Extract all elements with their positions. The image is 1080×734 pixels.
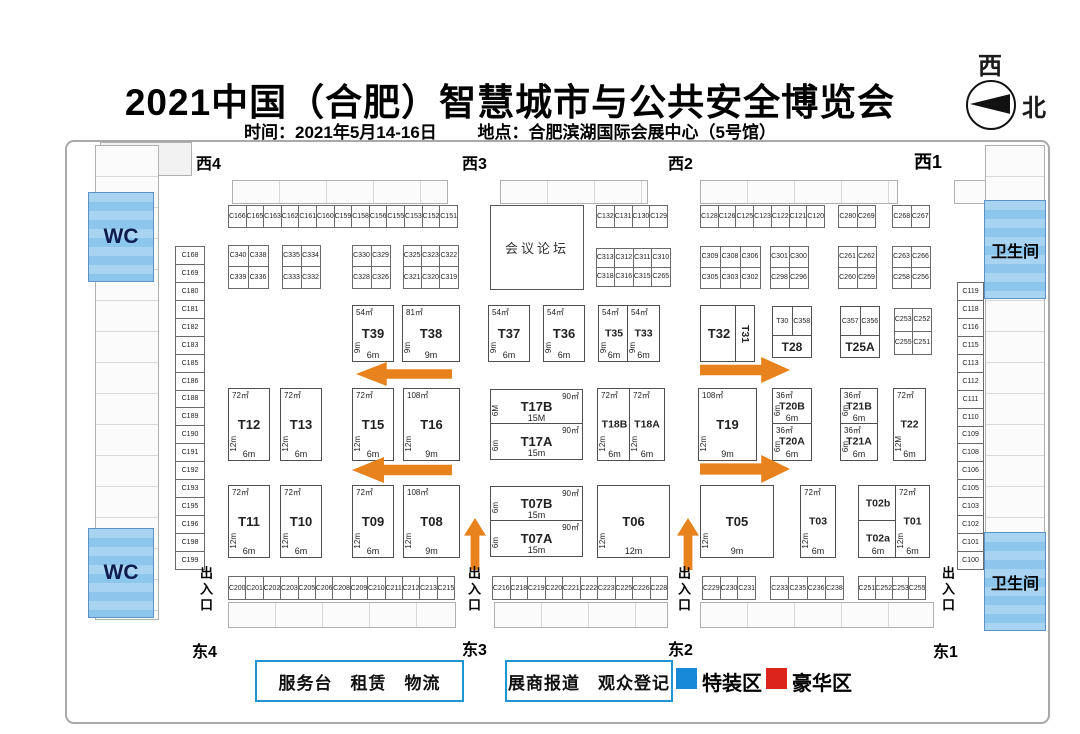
booth-area: 108㎡ bbox=[407, 390, 428, 401]
booth-T17A: 90㎡T17A6m15m bbox=[490, 423, 583, 460]
booth-cell: C260 bbox=[838, 267, 858, 289]
booth-cell: C165 bbox=[246, 205, 265, 228]
booth-T17B: 90㎡T17B6M15M bbox=[490, 389, 583, 425]
booth-cell: C156 bbox=[369, 205, 388, 228]
booth-cell: C339 bbox=[228, 266, 249, 289]
booth-area: 72㎡ bbox=[356, 487, 373, 498]
booth-side: 12m bbox=[598, 436, 607, 452]
booth-cell: C192 bbox=[175, 461, 205, 480]
booth-side: 12m bbox=[630, 436, 639, 452]
booth-T33: 54㎡T339m6m bbox=[627, 305, 660, 362]
booth-area: 36㎡ bbox=[844, 425, 861, 436]
restroom-wc-bottom-left: WC bbox=[88, 528, 154, 618]
booth-cell: C159 bbox=[334, 205, 353, 228]
booth-cell: C160 bbox=[316, 205, 335, 228]
booth-id: T17A bbox=[521, 433, 553, 448]
booth-side: 12m bbox=[281, 533, 290, 549]
gate-west-4: 西4 bbox=[196, 150, 221, 174]
booth-strip-bottom-2: C216C218C219C220C221C222C223C225C226C228 bbox=[492, 576, 668, 600]
wall-top-2 bbox=[500, 180, 648, 204]
booth-cell: C255 bbox=[894, 331, 914, 355]
booth-side: 9m bbox=[599, 342, 608, 353]
booth-T31: T31 bbox=[735, 305, 755, 362]
booth-cell: C206 bbox=[315, 576, 333, 600]
booth-id: T18A bbox=[634, 418, 660, 430]
booth-cell: C200 bbox=[228, 576, 246, 600]
booth-cell: C223 bbox=[597, 576, 616, 600]
booth-area: 54㎡ bbox=[631, 307, 648, 318]
booth-cell: C300 bbox=[789, 246, 809, 268]
booth-bottom: 6m bbox=[641, 449, 654, 459]
booth-cell: C115 bbox=[957, 336, 984, 355]
gate-west-1: 西1 bbox=[914, 148, 942, 174]
booth-cell: C332 bbox=[301, 266, 321, 289]
booth-id: T31 bbox=[739, 324, 751, 342]
booth-id: T18B bbox=[602, 418, 628, 430]
booth-cell: C129 bbox=[649, 205, 668, 228]
booth-side: 6m bbox=[491, 502, 500, 513]
booth-bottom: 6m bbox=[872, 546, 885, 556]
booth-cell: C191 bbox=[175, 443, 205, 462]
booth-cell: C296 bbox=[789, 267, 809, 289]
booth-bottom: 9m bbox=[721, 449, 734, 459]
booth-cell: C329 bbox=[371, 245, 391, 268]
booth-id: T32 bbox=[708, 325, 730, 340]
booth-cell: C235 bbox=[788, 576, 807, 600]
booth-block-3: C330C329C328C326 bbox=[352, 245, 390, 288]
booth-cell: C311 bbox=[633, 248, 653, 268]
booth-cell: C318 bbox=[596, 267, 616, 287]
booth-cell: C112 bbox=[957, 372, 984, 391]
booth-cell: C333 bbox=[282, 266, 302, 289]
booth-side: 6m bbox=[491, 537, 500, 548]
booth-cell: C251 bbox=[912, 331, 932, 355]
booth-cell: C308 bbox=[720, 246, 741, 268]
booth-strip-bottom-1: C200C201C202C203C205C206C208C209C210C211… bbox=[228, 576, 455, 600]
booth-strip-top-5: C268C267 bbox=[892, 205, 930, 228]
entrance-label: 出入口 bbox=[938, 566, 957, 614]
booth-cell: C198 bbox=[175, 533, 205, 552]
booth-bottom: 6m bbox=[608, 449, 621, 459]
booth-id: T21A bbox=[846, 435, 872, 447]
booth-T18A: 72㎡T18A12m6m bbox=[629, 388, 665, 461]
booth-id: T20A bbox=[779, 435, 805, 447]
booth-side: 12m bbox=[404, 533, 413, 549]
entrance-label: 出入口 bbox=[196, 566, 215, 614]
booth-cell: C102 bbox=[957, 515, 984, 534]
booth-block-1: C340C338C339C336 bbox=[228, 245, 268, 288]
booth-block-4: C325C323C322C321C320C319 bbox=[403, 245, 458, 288]
booth-id: T33 bbox=[634, 327, 652, 339]
booth-cell: C334 bbox=[301, 245, 321, 268]
booth-T20A: 36㎡T20A6m6m bbox=[772, 423, 812, 461]
wall-top-4 bbox=[954, 180, 986, 204]
booth-column-right: C119C118C116C115C113C112C111C110C109C108… bbox=[957, 282, 984, 570]
booth-area: 72㎡ bbox=[633, 390, 650, 401]
booth-cell: C130 bbox=[632, 205, 651, 228]
compass-needle-icon bbox=[970, 91, 1010, 117]
booth-cell: C211 bbox=[385, 576, 403, 600]
booth-cell: C216 bbox=[492, 576, 511, 600]
booth-area: 72㎡ bbox=[232, 390, 249, 401]
booth-id: T08 bbox=[420, 513, 442, 528]
booth-cell: C263 bbox=[892, 246, 912, 268]
booth-bottom: 6m bbox=[243, 546, 256, 556]
booth-cell: C128 bbox=[700, 205, 719, 228]
booth-area: 72㎡ bbox=[899, 487, 916, 498]
booth-block-6: C309C308C306C305C303C302 bbox=[700, 246, 760, 288]
booth-cell: C155 bbox=[386, 205, 405, 228]
entrance-label: 出入口 bbox=[464, 566, 483, 614]
booth-bottom: 6m bbox=[637, 350, 650, 360]
booth-T32: T32 bbox=[700, 305, 738, 362]
booth-id: T39 bbox=[362, 325, 384, 340]
booth-cell: C255 bbox=[908, 576, 926, 600]
legend-registration-box: 展商报道 观众登记 bbox=[505, 660, 673, 702]
booth-cell: C316 bbox=[614, 267, 634, 287]
booth-cell: C253 bbox=[892, 576, 910, 600]
booth-cell: C321 bbox=[403, 266, 422, 289]
booth-id: T13 bbox=[290, 416, 312, 431]
booth-T05: T0512m9m bbox=[700, 485, 774, 558]
booth-cell: C168 bbox=[175, 246, 205, 265]
booth-id: T05 bbox=[726, 513, 748, 528]
booth-strip-top-1: C166C165C163C162C161C160C159C158C156C155… bbox=[228, 205, 458, 228]
booth-side: 12m bbox=[598, 533, 607, 549]
compass-icon bbox=[966, 80, 1016, 130]
booth-cell: C153 bbox=[404, 205, 423, 228]
booth-T35: 54㎡T359m6m bbox=[598, 305, 630, 362]
booth-cell: C120 bbox=[806, 205, 825, 228]
booth-cell: C226 bbox=[632, 576, 651, 600]
booth-id: T36 bbox=[553, 325, 575, 340]
booth-cell: C131 bbox=[614, 205, 633, 228]
booth-cell: C302 bbox=[740, 267, 761, 289]
booth-cell: C103 bbox=[957, 497, 984, 516]
booth-cell: C213 bbox=[419, 576, 437, 600]
booth-cell: C326 bbox=[371, 266, 391, 289]
wall-top-3 bbox=[700, 180, 898, 204]
booth-id: T35 bbox=[605, 327, 623, 339]
booth-cell: C340 bbox=[228, 245, 249, 268]
booth-id: T01 bbox=[903, 515, 921, 527]
booth-area: 54㎡ bbox=[356, 307, 373, 318]
booth-block-T25A: C357C356 T25A bbox=[840, 306, 880, 358]
booth-id: T38 bbox=[420, 325, 442, 340]
booth-cell: C166 bbox=[228, 205, 247, 228]
booth-cell: C113 bbox=[957, 354, 984, 373]
booth-bottom: 6m bbox=[853, 413, 866, 423]
booth-T22: 72㎡T2212M6m bbox=[893, 388, 926, 461]
booth-cell: C110 bbox=[957, 408, 984, 427]
booth-T02a: T02a6m bbox=[858, 520, 898, 558]
booth-side: 12m bbox=[229, 533, 238, 549]
wall-bottom-3 bbox=[700, 602, 934, 628]
booth-T02b: T02b bbox=[858, 485, 898, 523]
booth-T37: 54㎡T379m6m bbox=[488, 305, 530, 362]
booth-bottom: 6m bbox=[812, 546, 825, 556]
booth-cell: C105 bbox=[957, 479, 984, 498]
booth-cell: C230 bbox=[720, 576, 739, 600]
booth-cell: C201 bbox=[245, 576, 263, 600]
booth-block-9: C263C266C258C256 bbox=[892, 246, 930, 288]
booth-side: 12m bbox=[701, 533, 710, 549]
booth-id: T17B bbox=[521, 399, 553, 414]
booth-T16: 108㎡T1612m9m bbox=[403, 388, 460, 461]
booth-block-8: C261C262C260C259 bbox=[838, 246, 876, 288]
booth-id: T09 bbox=[362, 513, 384, 528]
booth-cell: C323 bbox=[421, 245, 440, 268]
booth-cell: C220 bbox=[545, 576, 564, 600]
booth-area: 72㎡ bbox=[232, 487, 249, 498]
booth-cell: C126 bbox=[718, 205, 737, 228]
booth-column-left: C168C169C180C181C182C183C185C186C188C189… bbox=[175, 246, 205, 570]
wall-bottom-2 bbox=[494, 602, 668, 628]
booth-T07A: 90㎡T07A6m15m bbox=[490, 520, 583, 557]
booth-cell: C219 bbox=[527, 576, 546, 600]
floor-plan-canvas: 2021中国（合肥）智慧城市与公共安全博览会 时间：2021年5月14-16日 … bbox=[0, 0, 1080, 734]
booth-cell: C183 bbox=[175, 336, 205, 355]
booth-bottom: 15m bbox=[528, 510, 546, 520]
booth-area: 54㎡ bbox=[547, 307, 564, 318]
legend-services-box: 服务台 租赁 物流 bbox=[255, 660, 464, 702]
booth-cell: C122 bbox=[771, 205, 790, 228]
booth-side: 12m bbox=[801, 533, 810, 549]
gate-west-2: 西2 bbox=[668, 150, 693, 174]
booth-T19: 108㎡T1912m9m bbox=[698, 388, 757, 461]
booth-block-7: C301C300C298C296 bbox=[770, 246, 808, 288]
booth-area: 72㎡ bbox=[356, 390, 373, 401]
booth-bottom: 6m bbox=[503, 350, 516, 360]
booth-T10: 72㎡T1012m6m bbox=[280, 485, 322, 558]
booth-cell: C119 bbox=[957, 282, 984, 301]
restroom-top-right: 卫生间 bbox=[984, 200, 1046, 299]
restroom-label: 卫生间 bbox=[991, 238, 1039, 262]
booth-cell: C238 bbox=[825, 576, 844, 600]
booth-cell: C233 bbox=[770, 576, 789, 600]
booth-cell: C262 bbox=[857, 246, 877, 268]
booth-cell: C202 bbox=[263, 576, 281, 600]
booth-side: 12M bbox=[894, 436, 903, 452]
booth-T18B: 72㎡T18B12m6m bbox=[597, 388, 632, 461]
booth-T25A: T25A bbox=[841, 335, 879, 357]
booth-area: 72㎡ bbox=[601, 390, 618, 401]
booth-side: 6m bbox=[773, 405, 782, 416]
booth-T38: 81㎡T389m9m bbox=[402, 305, 460, 362]
booth-side: 6m bbox=[773, 441, 782, 452]
booth-T11: 72㎡T1112m6m bbox=[228, 485, 270, 558]
booth-cell: C312 bbox=[614, 248, 634, 268]
booth-cell: C280 bbox=[838, 205, 858, 228]
booth-bottom: 12m bbox=[625, 546, 643, 556]
booth-cell: C158 bbox=[351, 205, 370, 228]
booth-cell: C328 bbox=[352, 266, 372, 289]
booth-cell: C101 bbox=[957, 533, 984, 552]
booth-bottom: 9m bbox=[425, 449, 438, 459]
booth-cell: C215 bbox=[437, 576, 455, 600]
booth-cell: C125 bbox=[735, 205, 754, 228]
booth-area: 72㎡ bbox=[804, 487, 821, 498]
booth-area: 72㎡ bbox=[284, 487, 301, 498]
booth-cell: C231 bbox=[737, 576, 756, 600]
booth-bottom: 6m bbox=[558, 350, 571, 360]
booth-cell: C315 bbox=[633, 267, 653, 287]
booth-cell: C251 bbox=[858, 576, 876, 600]
booth-cell: C218 bbox=[510, 576, 529, 600]
booth-cell: C189 bbox=[175, 407, 205, 426]
booth-T15: 72㎡T1512m6m bbox=[352, 388, 394, 461]
booth-side: 6m bbox=[491, 440, 500, 451]
booth-cell: C123 bbox=[753, 205, 772, 228]
booth-cell: C267 bbox=[911, 205, 931, 228]
booth-cell: C268 bbox=[892, 205, 912, 228]
wc-label: WC bbox=[104, 225, 139, 249]
booth-id: T07A bbox=[521, 530, 553, 545]
booth-bottom: 6m bbox=[243, 449, 256, 459]
booth-cell: C195 bbox=[175, 497, 205, 516]
booth-cell: C258 bbox=[892, 267, 912, 289]
booth-side: 9m bbox=[403, 342, 412, 353]
booth-T03: 72㎡T0312m6m bbox=[800, 485, 836, 558]
wc-label: WC bbox=[104, 561, 139, 585]
booth-side: 12m bbox=[353, 436, 362, 452]
booth-area: 90㎡ bbox=[562, 425, 579, 436]
booth-area: 90㎡ bbox=[562, 391, 579, 402]
booth-cell: C186 bbox=[175, 372, 205, 391]
booth-T09: 72㎡T0912m6m bbox=[352, 485, 394, 558]
booth-cell: C338 bbox=[248, 245, 269, 268]
booth-bottom: 15m bbox=[528, 545, 546, 555]
booth-id: T37 bbox=[498, 325, 520, 340]
booth-cell: C221 bbox=[562, 576, 581, 600]
booth-cell: C118 bbox=[957, 300, 984, 319]
gate-east-1: 东1 bbox=[933, 638, 958, 662]
booth-cell: C100 bbox=[957, 551, 984, 570]
booth-bottom: 6m bbox=[786, 449, 799, 459]
booth-area: 108㎡ bbox=[407, 487, 428, 498]
legend-deluxe-zone-label: 豪华区 bbox=[792, 667, 852, 696]
booth-cell: C205 bbox=[298, 576, 316, 600]
booth-side: 12m bbox=[229, 436, 238, 452]
booth-bottom: 9m bbox=[425, 546, 438, 556]
booth-cell: C196 bbox=[175, 515, 205, 534]
booth-cell: C182 bbox=[175, 318, 205, 337]
booth-bottom: 6m bbox=[367, 449, 380, 459]
booth-cell: C180 bbox=[175, 282, 205, 301]
booth-block-5: C313C312C311C310C318C316C315C265 bbox=[596, 248, 670, 286]
booth-cell: C305 bbox=[700, 267, 721, 289]
booth-cell: C193 bbox=[175, 479, 205, 498]
booth-strip-bottom-3: C229C230C231 bbox=[702, 576, 756, 600]
booth-side: 6M bbox=[491, 405, 500, 416]
booth-cell: C188 bbox=[175, 390, 205, 409]
booth-area: 81㎡ bbox=[406, 307, 423, 318]
booth-area: 72㎡ bbox=[897, 390, 914, 401]
booth-cell: C108 bbox=[957, 443, 984, 462]
booth-id: T07B bbox=[521, 496, 553, 511]
conference-forum-room: 会议论坛 bbox=[490, 205, 584, 290]
booth-cell: C109 bbox=[957, 426, 984, 445]
booth-cell: C111 bbox=[957, 390, 984, 409]
booth-cell: C208 bbox=[332, 576, 350, 600]
booth-bottom: 6m bbox=[786, 413, 799, 423]
booth-cell: C116 bbox=[957, 318, 984, 337]
booth-cell: C209 bbox=[350, 576, 368, 600]
booth-cell: C313 bbox=[596, 248, 616, 268]
booth-strip-bottom-4: C233C235C236C238 bbox=[770, 576, 844, 600]
booth-cell: C228 bbox=[650, 576, 669, 600]
booth-cell: C301 bbox=[770, 246, 790, 268]
legend-special-zone-label: 特装区 bbox=[702, 667, 762, 696]
booth-area: 54㎡ bbox=[492, 307, 509, 318]
booth-bottom: 6m bbox=[906, 546, 919, 556]
booth-cell: C190 bbox=[175, 425, 205, 444]
booth-id: T11 bbox=[238, 513, 260, 528]
booth-cell: C356 bbox=[861, 307, 880, 335]
booth-cell: C335 bbox=[282, 245, 302, 268]
booth-cell: C229 bbox=[702, 576, 721, 600]
booth-cell: C161 bbox=[298, 205, 317, 228]
booth-side: 6m bbox=[841, 441, 850, 452]
booth-cell: C298 bbox=[770, 267, 790, 289]
booth-id: T02b bbox=[866, 497, 891, 509]
wall-top-1 bbox=[232, 180, 448, 204]
booth-cell: C132 bbox=[596, 205, 615, 228]
booth-id: T03 bbox=[809, 515, 827, 527]
booth-cell: C252 bbox=[875, 576, 893, 600]
booth-cell: C330 bbox=[352, 245, 372, 268]
booth-side: 9m bbox=[489, 342, 498, 353]
booth-bottom: 6m bbox=[903, 449, 916, 459]
booth-side: 9m bbox=[544, 342, 553, 353]
booth-cell: C151 bbox=[439, 205, 458, 228]
gate-east-3: 东3 bbox=[462, 636, 487, 660]
booth-cell: C169 bbox=[175, 264, 205, 283]
restroom-label: 卫生间 bbox=[991, 570, 1039, 594]
booth-side: 12m bbox=[353, 533, 362, 549]
booth-cell: C309 bbox=[700, 246, 721, 268]
booth-cell: C261 bbox=[838, 246, 858, 268]
booth-id: T10 bbox=[290, 513, 312, 528]
gate-west-3: 西3 bbox=[462, 150, 487, 174]
booth-T39: 54㎡T399m6m bbox=[352, 305, 394, 362]
wall-bottom-1 bbox=[228, 602, 456, 628]
booth-cell: C203 bbox=[280, 576, 298, 600]
booth-cell: C106 bbox=[957, 461, 984, 480]
booth-cell: C322 bbox=[439, 245, 458, 268]
booth-cell: C225 bbox=[615, 576, 634, 600]
booth-cell: C256 bbox=[911, 267, 931, 289]
booth-area: 108㎡ bbox=[702, 390, 723, 401]
booth-cell: C336 bbox=[248, 266, 269, 289]
gate-east-4: 东4 bbox=[192, 638, 217, 662]
booth-side: 12m bbox=[896, 533, 905, 549]
booth-cell: C357 bbox=[841, 307, 861, 335]
legend-special-zone-swatch bbox=[676, 668, 697, 689]
booth-strip-top-4: C280C269 bbox=[838, 205, 876, 228]
booth-strip-top-2: C132C131C130C129 bbox=[596, 205, 668, 228]
booth-cell: C310 bbox=[651, 248, 671, 268]
booth-bottom: 6m bbox=[367, 546, 380, 556]
booth-cell: T30 bbox=[773, 307, 793, 335]
booth-id: T20B bbox=[779, 400, 805, 412]
booth-cell: C152 bbox=[422, 205, 441, 228]
booth-cell: C319 bbox=[439, 266, 458, 289]
booth-cell: C253 bbox=[894, 308, 914, 332]
booth-area: 90㎡ bbox=[562, 522, 579, 533]
booth-cell: C266 bbox=[911, 246, 931, 268]
booth-cell: C259 bbox=[857, 267, 877, 289]
